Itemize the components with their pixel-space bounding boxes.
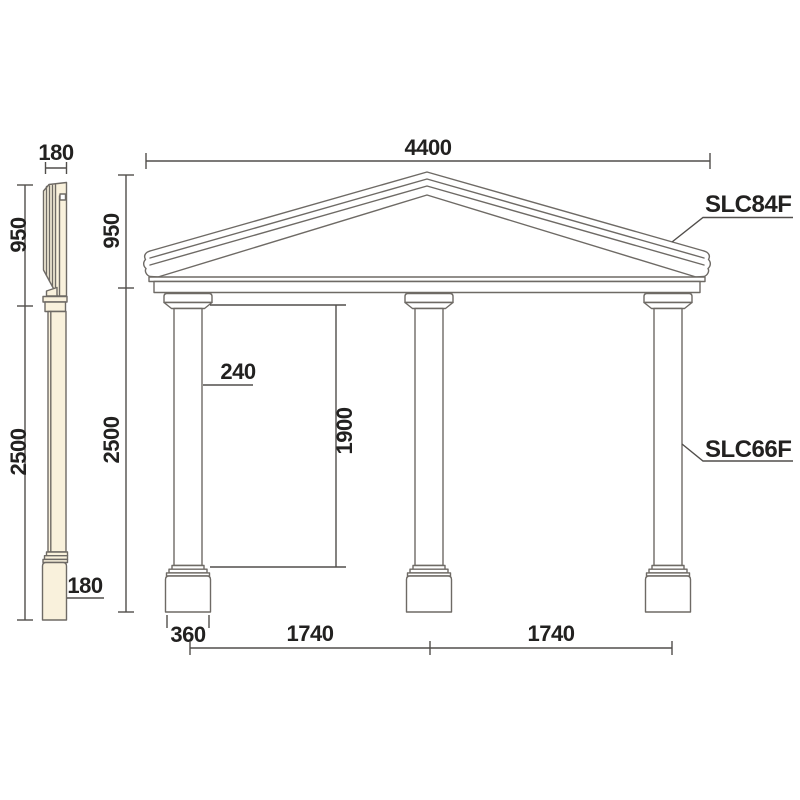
column-part-label: SLC66F [705,436,791,463]
entablature [149,277,705,293]
column-height-dim: 2500 [99,416,124,463]
profile-plinth [43,563,67,621]
side-profile-view [43,183,68,621]
pediment [144,172,711,277]
bay-right-dim: 1740 [528,621,575,646]
pediment-height-dim: 950 [99,213,124,248]
profile-width-dim: 180 [38,140,73,165]
plinth-width-dim: 360 [170,622,205,647]
bay-left-dim: 1740 [287,621,334,646]
column-middle [405,294,453,613]
column-left [164,294,212,613]
overall-width-dim: 4400 [405,135,452,160]
part-callouts: SLC84F SLC66F [672,191,793,463]
front-elevation-view [144,172,711,612]
profile-bed-molding [47,288,58,297]
profile-base-depth-dim: 180 [67,573,102,598]
profile-pediment-height-dim: 950 [6,217,31,252]
profile-shelf [45,302,66,312]
profile-notch [60,194,66,200]
column-right [644,294,692,613]
pediment-part-label: SLC84F [705,191,791,218]
portico-technical-drawing: 180 950 2500 180 [0,0,800,800]
shaft-width-dim: 240 [220,359,255,384]
profile-column-height-dim: 2500 [6,428,31,475]
drawing-svg: 180 950 2500 180 [0,0,800,800]
profile-shelf-top [43,297,67,303]
clear-height-dim: 1900 [332,407,357,454]
